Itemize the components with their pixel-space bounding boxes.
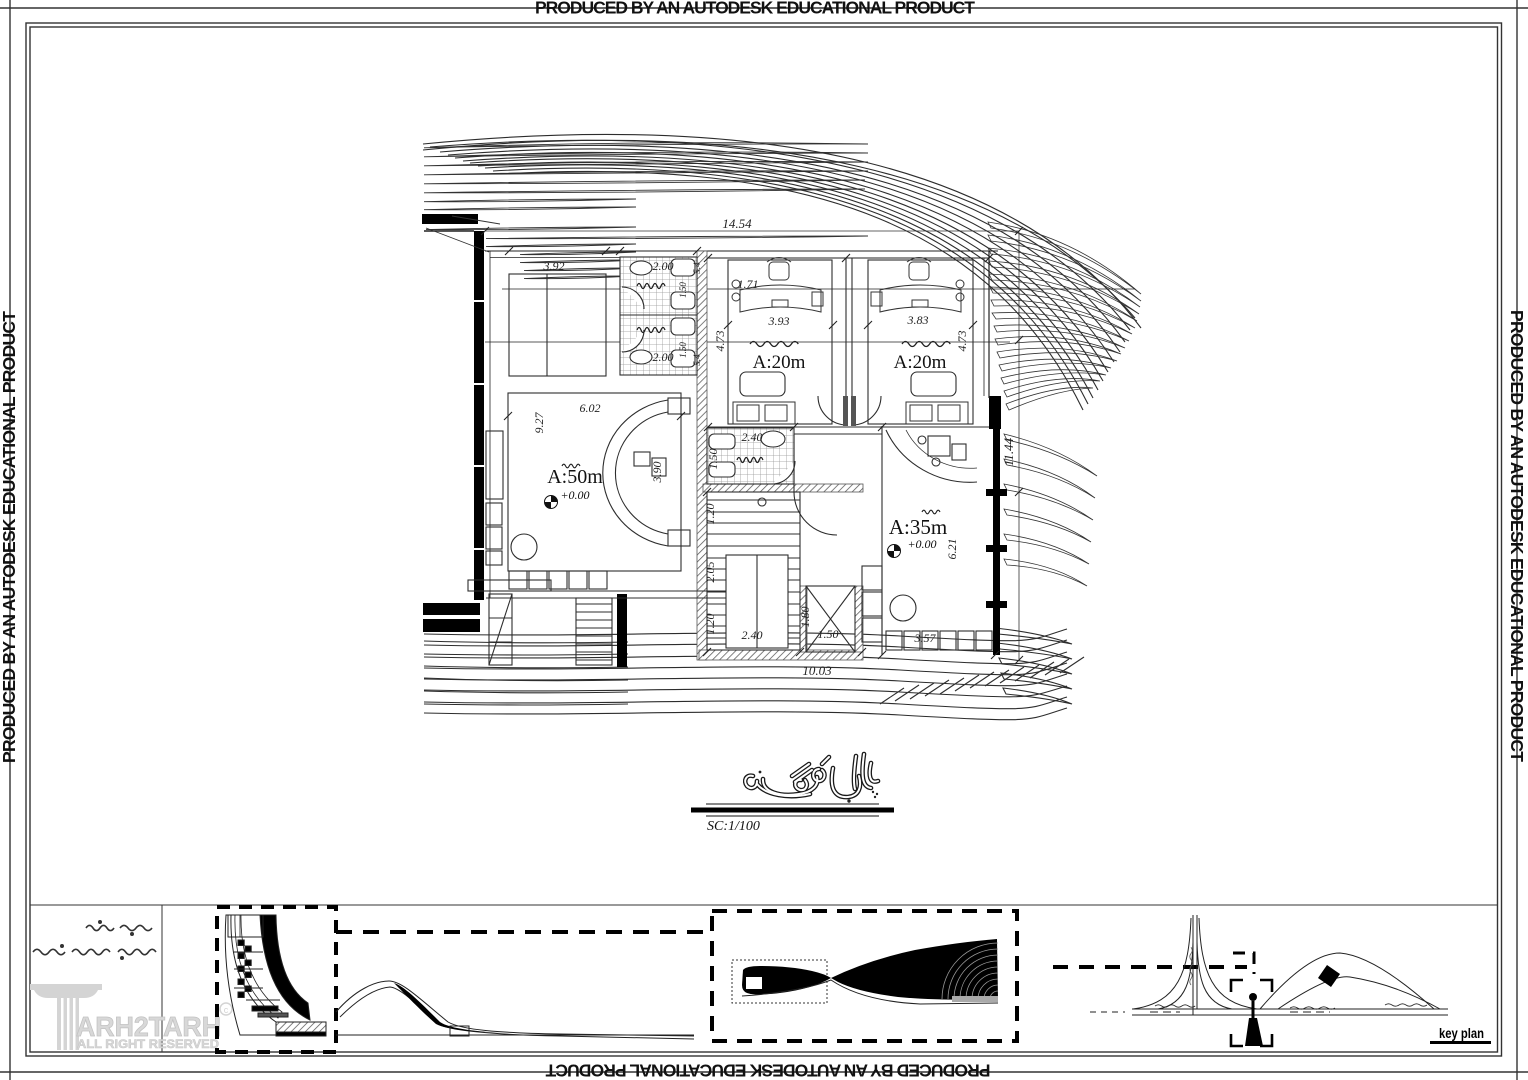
svg-text:1.71: 1.71 bbox=[738, 277, 759, 291]
svg-text:+0.00: +0.00 bbox=[560, 488, 589, 502]
svg-text:A:35m: A:35m bbox=[889, 515, 947, 539]
svg-text:2.40: 2.40 bbox=[742, 628, 763, 642]
svg-text:11.44: 11.44 bbox=[1001, 437, 1016, 466]
svg-text:6.21: 6.21 bbox=[945, 539, 959, 560]
svg-text:1.20: 1.20 bbox=[703, 614, 717, 635]
svg-text:3.90: 3.90 bbox=[650, 462, 664, 484]
svg-text:PRODUCED BY AN AUTODESK EDUCAT: PRODUCED BY AN AUTODESK EDUCATIONAL PROD… bbox=[535, 0, 975, 18]
svg-text:2.40: 2.40 bbox=[742, 430, 763, 444]
svg-text:3.57: 3.57 bbox=[914, 631, 937, 645]
svg-text:A:20m: A:20m bbox=[894, 352, 947, 373]
svg-text:1.80: 1.80 bbox=[798, 607, 812, 628]
svg-text:+0.00: +0.00 bbox=[907, 537, 936, 551]
svg-text:1.50: 1.50 bbox=[678, 282, 688, 298]
svg-text:PRODUCED BY AN AUTODESK EDUCAT: PRODUCED BY AN AUTODESK EDUCATIONAL PROD… bbox=[0, 311, 19, 763]
svg-text:A:20m: A:20m bbox=[753, 352, 806, 373]
svg-text:PRODUCED BY AN AUTODESK EDUCAT: PRODUCED BY AN AUTODESK EDUCATIONAL PROD… bbox=[545, 1061, 990, 1080]
svg-text:2.00: 2.00 bbox=[653, 259, 674, 273]
svg-text:3.83: 3.83 bbox=[907, 313, 929, 327]
svg-text:10.03: 10.03 bbox=[802, 663, 832, 678]
svg-text:A:50m: A:50m bbox=[547, 466, 603, 488]
svg-text:c: c bbox=[224, 1005, 229, 1015]
svg-text:2.05: 2.05 bbox=[703, 562, 717, 583]
svg-text:2.00: 2.00 bbox=[653, 350, 674, 364]
svg-text:PRODUCED BY AN AUTODESK EDUCAT: PRODUCED BY AN AUTODESK EDUCATIONAL PROD… bbox=[1507, 310, 1527, 762]
svg-text:5.4: 5.4 bbox=[692, 354, 702, 366]
svg-text:1.20: 1.20 bbox=[703, 504, 717, 525]
svg-text:3.93: 3.93 bbox=[768, 314, 790, 328]
svg-text:3.92: 3.92 bbox=[543, 259, 565, 273]
svg-text:4.73: 4.73 bbox=[713, 331, 727, 352]
svg-text:1.50: 1.50 bbox=[706, 449, 720, 470]
svg-text:9.27: 9.27 bbox=[532, 412, 546, 434]
svg-text:4.73: 4.73 bbox=[955, 331, 969, 352]
svg-text:1.50: 1.50 bbox=[678, 342, 688, 358]
svg-text:1.50: 1.50 bbox=[818, 627, 839, 641]
svg-text:key plan: key plan bbox=[1439, 1026, 1484, 1041]
svg-text:ALL RIGHT RESERVED: ALL RIGHT RESERVED bbox=[77, 1037, 219, 1051]
svg-text:SC:1/100: SC:1/100 bbox=[707, 819, 760, 834]
svg-text:6.02: 6.02 bbox=[580, 401, 601, 415]
svg-text:14.54: 14.54 bbox=[722, 216, 752, 231]
svg-text:5.4: 5.4 bbox=[692, 262, 702, 274]
